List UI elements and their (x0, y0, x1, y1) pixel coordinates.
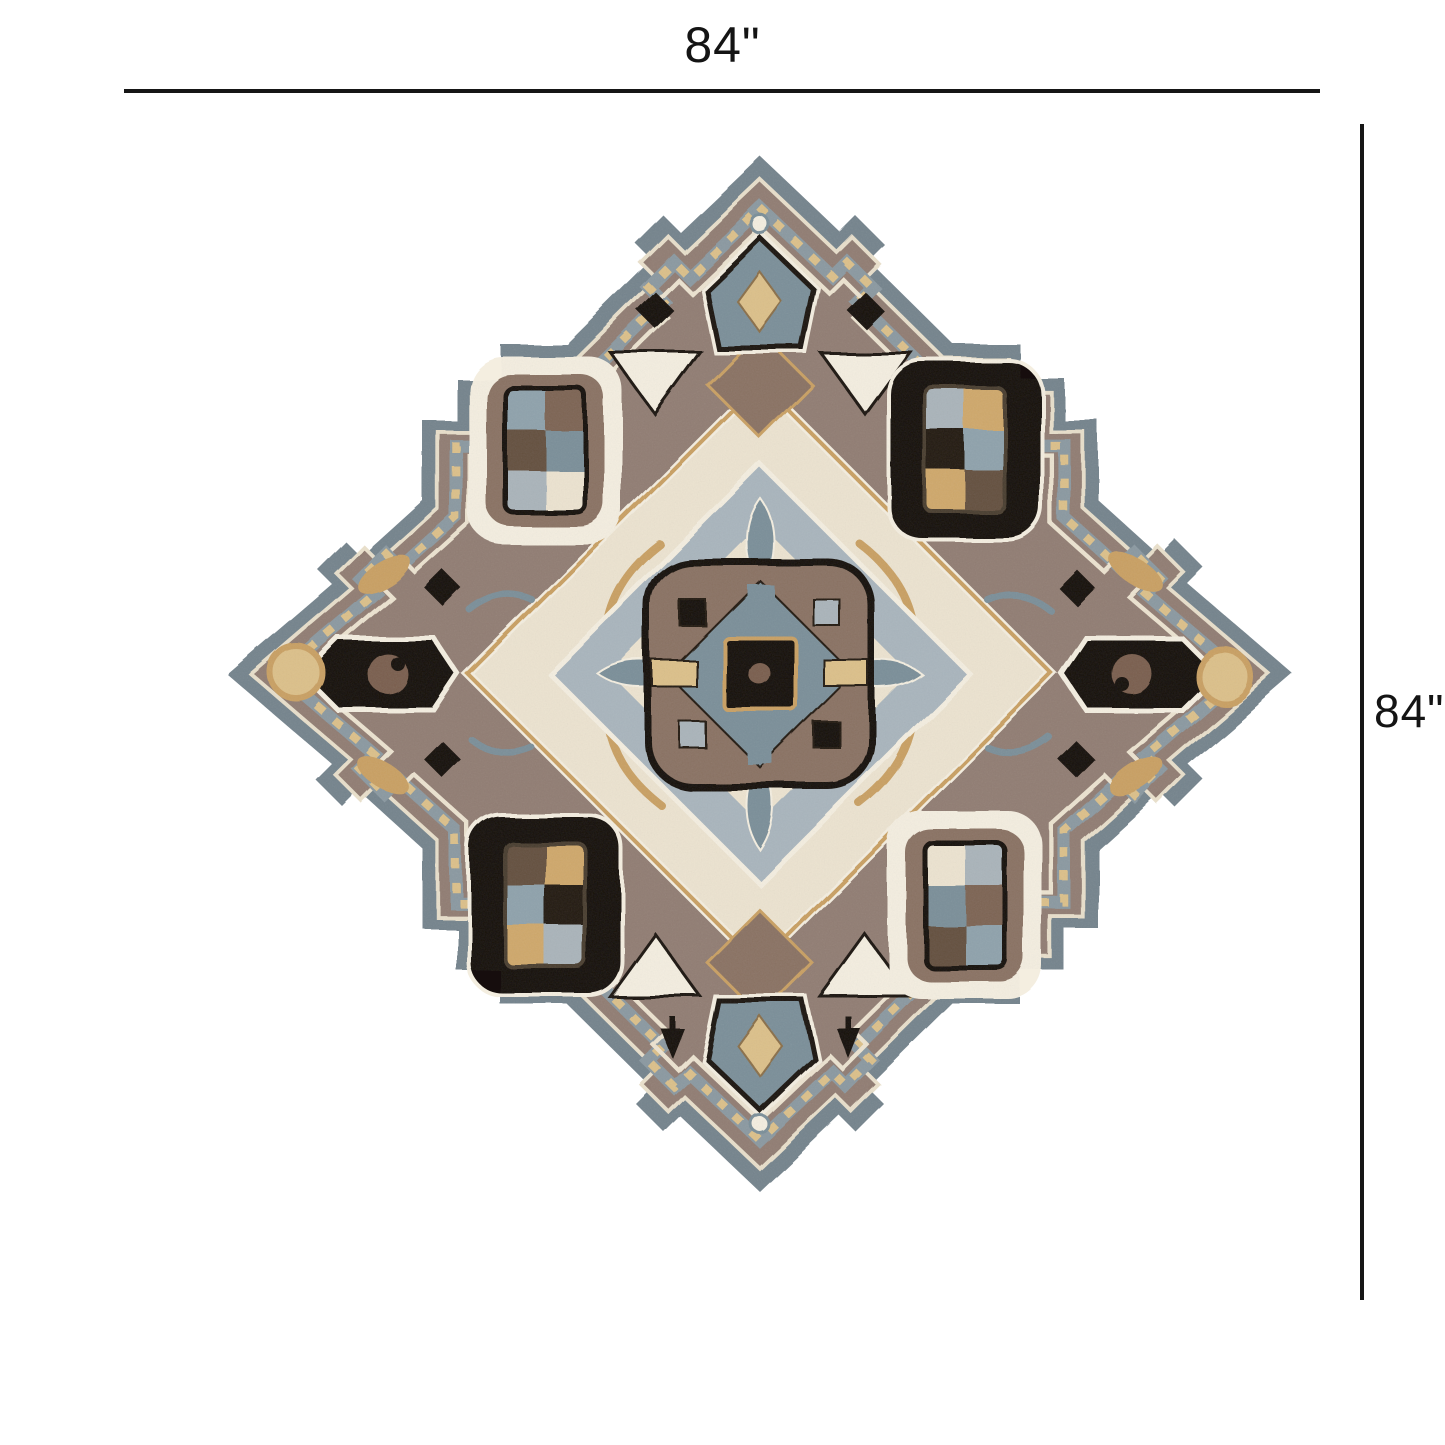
product-dimension-image: 84" 84" (0, 0, 1445, 1445)
wool-texture-overlay (200, 130, 1320, 1220)
rug (200, 130, 1320, 1220)
rug-photo (0, 0, 1445, 1445)
